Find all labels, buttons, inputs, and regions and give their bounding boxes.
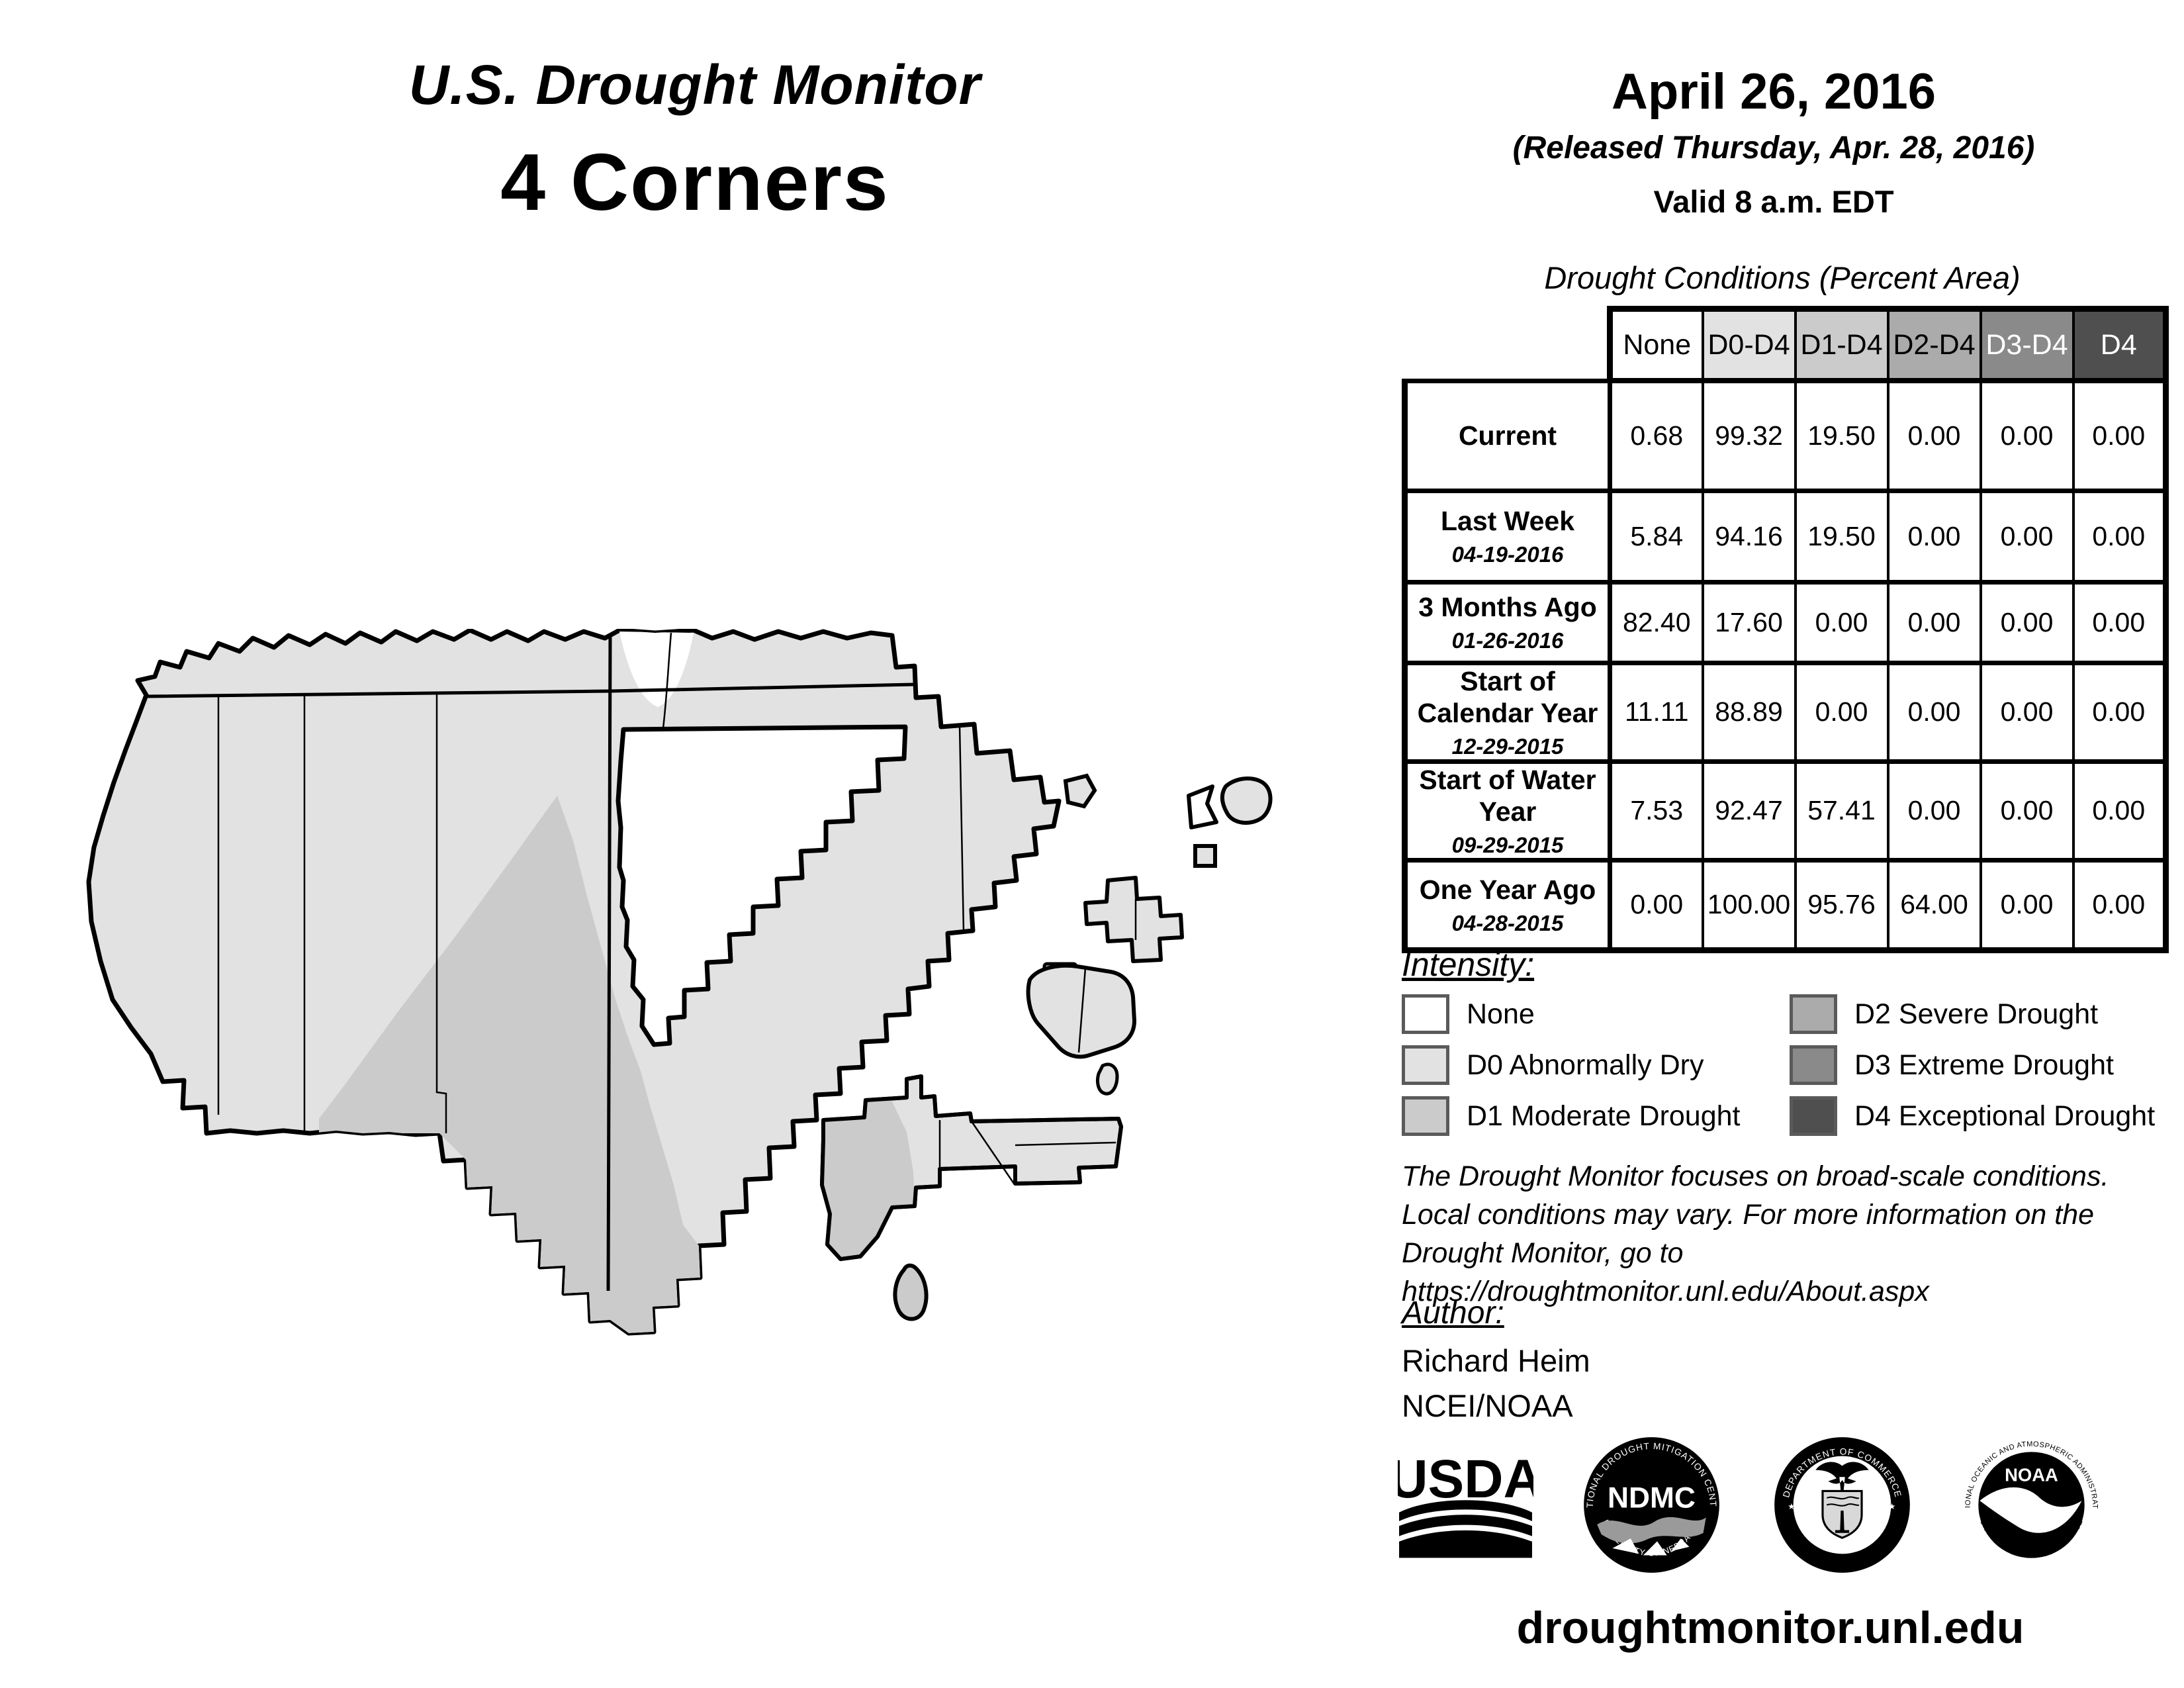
noaa-center-text: NOAA — [2005, 1465, 2058, 1485]
page-title: U.S. Drought Monitor — [357, 53, 1032, 117]
cell-value: 99.32 — [1703, 381, 1796, 491]
cell-value: 0.00 — [2073, 381, 2166, 491]
legend-item-none: None — [1402, 994, 1535, 1034]
cell-value: 0.00 — [1888, 381, 1981, 491]
cell-value: 92.47 — [1703, 761, 1796, 860]
drought-monitor-report: U.S. Drought Monitor 4 Corners April 26,… — [0, 0, 2184, 1688]
table-row: Start of Calendar Year 12-29-2015 11.11 … — [1405, 663, 2166, 761]
region-title: 4 Corners — [357, 136, 1032, 228]
legend-swatch-none — [1402, 994, 1449, 1034]
table-row: 3 Months Ago 01-26-2016 82.40 17.60 0.00… — [1405, 582, 2166, 663]
cell-value: 82.40 — [1610, 582, 1703, 663]
svg-text:★: ★ — [1788, 1502, 1795, 1511]
map-island-ne-piece — [1066, 776, 1095, 806]
valid-time: Valid 8 a.m. EDT — [1390, 183, 2158, 220]
row-label-last-week: Last Week 04-19-2016 — [1405, 491, 1610, 582]
cell-value: 0.00 — [1981, 860, 2073, 950]
col-header-d1d4: D1-D4 — [1796, 309, 1888, 381]
disclaimer-line-3: Drought Monitor, go to https://droughtmo… — [1402, 1234, 2183, 1311]
cell-value: 0.00 — [1888, 582, 1981, 663]
drought-map-svg — [86, 629, 1297, 1377]
cell-value: 0.00 — [1981, 663, 2073, 761]
cell-value: 0.00 — [1981, 381, 2073, 491]
cell-value: 11.11 — [1610, 663, 1703, 761]
map-state-line-vertical — [608, 634, 610, 1291]
row-label-start-water-year: Start of Water Year 09-29-2015 — [1405, 761, 1610, 860]
cell-value: 0.00 — [2073, 582, 2166, 663]
ndmc-center-text: NDMC — [1608, 1482, 1696, 1515]
row-label-start-calendar-year: Start of Calendar Year 12-29-2015 — [1405, 663, 1610, 761]
release-date: (Released Thursday, Apr. 28, 2016) — [1390, 130, 2158, 166]
cell-value: 0.00 — [1610, 860, 1703, 950]
date-block: April 26, 2016 (Released Thursday, Apr. … — [1390, 63, 2158, 220]
col-header-d2d4: D2-D4 — [1888, 309, 1981, 381]
col-header-none: None — [1610, 309, 1703, 381]
map-island-cross — [1085, 878, 1182, 961]
legend-item-d2: D2 Severe Drought — [1790, 994, 2098, 1034]
legend-swatch-d2 — [1790, 994, 1837, 1034]
table-row: One Year Ago 04-28-2015 0.00 100.00 95.7… — [1405, 860, 2166, 950]
cell-value: 17.60 — [1703, 582, 1796, 663]
table-header-row: None D0-D4 D1-D4 D2-D4 D3-D4 D4 — [1405, 309, 2166, 381]
map-se-cluster-d1 — [822, 1099, 915, 1259]
author-org: NCEI/NOAA — [1402, 1387, 1573, 1424]
table-row: Current 0.68 99.32 19.50 0.00 0.00 0.00 — [1405, 381, 2166, 491]
map-island-south-d1 — [895, 1266, 926, 1319]
col-header-d0d4: D0-D4 — [1703, 309, 1796, 381]
drought-map — [86, 629, 1297, 1377]
map-island-square — [1195, 846, 1215, 866]
noaa-logo: NATIONAL OCEANIC AND ATMOSPHERIC ADMINIS… — [1962, 1435, 2101, 1578]
cell-value: 7.53 — [1610, 761, 1703, 860]
col-header-d4: D4 — [2073, 309, 2166, 381]
cell-value: 0.00 — [1981, 761, 2073, 860]
cell-value: 64.00 — [1888, 860, 1981, 950]
legend-item-d1: D1 Moderate Drought — [1402, 1096, 1741, 1136]
legend-swatch-d1 — [1402, 1096, 1449, 1136]
cell-value: 94.16 — [1703, 491, 1796, 582]
row-label-current: Current — [1405, 381, 1610, 491]
cell-value: 0.68 — [1610, 381, 1703, 491]
cell-value: 88.89 — [1703, 663, 1796, 761]
cell-value: 19.50 — [1796, 491, 1888, 582]
drought-conditions-table: None D0-D4 D1-D4 D2-D4 D3-D4 D4 Current … — [1402, 306, 2169, 953]
svg-text:★: ★ — [1888, 1502, 1895, 1511]
footer-url: droughtmonitor.unl.edu — [1383, 1602, 2158, 1654]
author-name: Richard Heim — [1402, 1342, 1590, 1379]
cell-value: 95.76 — [1796, 860, 1888, 950]
cell-value: 0.00 — [1888, 761, 1981, 860]
cell-value: 0.00 — [2073, 761, 2166, 860]
row-label-one-year-ago: One Year Ago 04-28-2015 — [1405, 860, 1610, 950]
cell-value: 5.84 — [1610, 491, 1703, 582]
cell-value: 0.00 — [1888, 491, 1981, 582]
legend-swatch-d4 — [1790, 1096, 1837, 1136]
cell-value: 100.00 — [1703, 860, 1796, 950]
cell-value: 0.00 — [1981, 491, 2073, 582]
table-row: Start of Water Year 09-29-2015 7.53 92.4… — [1405, 761, 2166, 860]
legend-swatch-d3 — [1790, 1045, 1837, 1085]
cell-value: 0.00 — [2073, 663, 2166, 761]
usda-logo: USDA — [1398, 1454, 1533, 1563]
table-title: Drought Conditions (Percent Area) — [1402, 259, 2163, 296]
cell-value: 0.00 — [1981, 582, 2073, 663]
disclaimer-line-1: The Drought Monitor focuses on broad-sca… — [1402, 1157, 2183, 1196]
legend-swatch-d0 — [1402, 1045, 1449, 1085]
legend-item-d0: D0 Abnormally Dry — [1402, 1045, 1704, 1085]
ndmc-logo: NATIONAL DROUGHT MITIGATION CENTER UNIVE… — [1582, 1435, 1721, 1578]
legend-title: Intensity: — [1402, 945, 1534, 984]
table-row: Last Week 04-19-2016 5.84 94.16 19.50 0.… — [1405, 491, 2166, 582]
map-island-arrow — [1189, 786, 1216, 827]
col-header-d3d4: D3-D4 — [1981, 309, 2073, 381]
map-island-teardrop — [1097, 1064, 1117, 1094]
row-label-3-months-ago: 3 Months Ago 01-26-2016 — [1405, 582, 1610, 663]
author-heading: Author: — [1402, 1295, 1504, 1331]
map-island-blob-ne — [1222, 778, 1271, 823]
legend-item-d3: D3 Extreme Drought — [1790, 1045, 2114, 1085]
cell-value: 57.41 — [1796, 761, 1888, 860]
disclaimer-line-2: Local conditions may vary. For more info… — [1402, 1196, 2183, 1234]
cell-value: 0.00 — [2073, 860, 2166, 950]
disclaimer: The Drought Monitor focuses on broad-sca… — [1402, 1157, 2183, 1311]
cell-value: 0.00 — [1888, 663, 1981, 761]
table-corner-cell — [1405, 309, 1610, 381]
cell-value: 0.00 — [2073, 491, 2166, 582]
doc-seal-logo: DEPARTMENT OF COMMERCE UNITED STATES OF … — [1772, 1435, 1912, 1578]
cell-value: 19.50 — [1796, 381, 1888, 491]
title-block: U.S. Drought Monitor 4 Corners — [357, 53, 1032, 228]
cell-value: 0.00 — [1796, 663, 1888, 761]
legend-item-d4: D4 Exceptional Drought — [1790, 1096, 2155, 1136]
map-date: April 26, 2016 — [1390, 63, 2158, 120]
cell-value: 0.00 — [1796, 582, 1888, 663]
